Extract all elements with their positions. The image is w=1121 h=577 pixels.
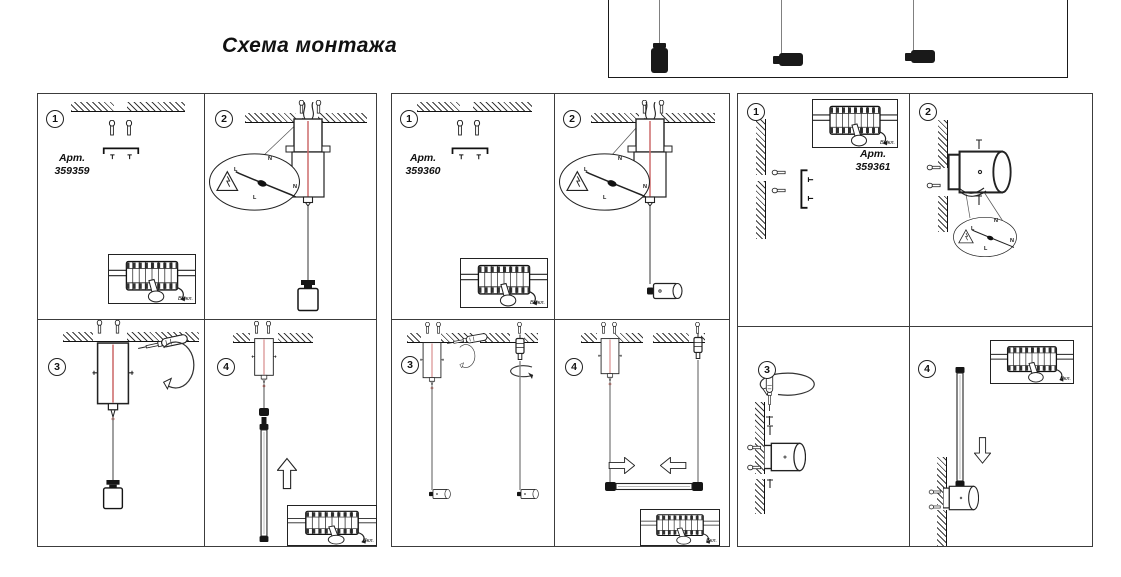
wall-canopy-icon (943, 486, 979, 509)
page-title: Схема монтажа (222, 34, 397, 58)
art-value: 359361 (842, 161, 904, 174)
dowel-icon (97, 320, 102, 333)
ceiling-canopy-icon (92, 343, 133, 417)
dowel-icon (927, 165, 940, 170)
dowel-icon (929, 490, 940, 494)
dowel-icon (748, 465, 761, 470)
tube-connector (262, 417, 267, 424)
step-1-cell: 1 Арт. 359360 Выкл. (392, 94, 554, 319)
art-label: Арт. (842, 148, 904, 161)
dowel-icon (115, 320, 120, 333)
cable-gripper-icon (516, 335, 524, 360)
rotation-arrow-icon (164, 342, 194, 389)
wire-n-label: N (1010, 238, 1014, 244)
terminal-block-inset: Выкл. (108, 254, 196, 304)
step-number-badge: 2 (563, 110, 581, 128)
terminal-block-inset: Вкл. (287, 505, 377, 546)
dowel-icon (696, 322, 700, 333)
pendant-lamp-horizontal (911, 50, 935, 63)
screw-icon (766, 416, 773, 425)
wiring-detail-balloon (210, 154, 300, 210)
wire-n-label: N (293, 184, 297, 190)
terminal-block-inset: Вкл. (640, 509, 720, 546)
ceiling-canopy-icon (598, 339, 622, 382)
down-arrow-icon (974, 438, 990, 464)
dowel-icon (602, 322, 606, 333)
art-label: Арт. (44, 152, 100, 165)
wire-n-label: N (268, 156, 272, 162)
tube-connector (605, 482, 616, 491)
wall-canopy-icon (764, 443, 805, 470)
article-number: Арт. 359360 (396, 152, 450, 178)
step-number-badge: 4 (217, 358, 235, 376)
spot-lamp-icon (647, 284, 682, 299)
step-number-badge: 1 (747, 103, 765, 121)
step-4-cell: 4 Вкл. (910, 327, 1092, 546)
rotation-arrow-icon (460, 345, 475, 368)
art-value: 359359 (44, 165, 100, 178)
mounting-bracket-icon (801, 170, 813, 208)
power-off-label: Выкл. (880, 140, 895, 146)
dowel-icon (927, 183, 940, 188)
step-3-cell: 3 (738, 327, 909, 546)
step-2-cell: 2 N L N L (205, 94, 376, 319)
lamp-socket-icon (104, 480, 123, 509)
power-on-label: Вкл. (363, 538, 374, 544)
pendant-lamp-horizontal (779, 53, 803, 66)
wire-n-label: N (643, 184, 647, 190)
art-label: Арт. (396, 152, 450, 165)
installation-instruction-sheet: Схема монтажа 1 Арт. 359359 (0, 0, 1121, 577)
step-3-cell: 3 (392, 320, 554, 546)
dowel-icon (316, 100, 321, 113)
step-number-badge: 1 (400, 110, 418, 128)
power-on-label: Вкл. (706, 538, 717, 544)
wire-n-label: N (618, 156, 622, 162)
art-value: 359360 (396, 165, 450, 178)
instruction-panel-359359: 1 Арт. 359359 Выкл. 2 (37, 93, 377, 547)
dowel-icon (772, 170, 785, 175)
right-arrow-icon (609, 457, 635, 473)
left-arrow-icon (660, 457, 686, 473)
article-number: Арт. 359359 (44, 152, 100, 178)
power-on-label: Вкл. (1060, 376, 1071, 382)
dowel-icon (518, 322, 522, 333)
pendant-cord (781, 0, 782, 57)
step-number-badge: 1 (46, 110, 64, 128)
step-2-cell: 2 N L N L (910, 94, 1092, 326)
dowel-icon (659, 100, 664, 113)
spot-lamp-icon (517, 489, 538, 498)
step-2-cell: 2 N L N L (555, 94, 729, 319)
dowel-icon (437, 322, 441, 333)
lamp-socket-icon (298, 280, 318, 311)
step-1-cell: 1 Арт. 359361 Выкл. (738, 94, 909, 326)
dowel-icon (748, 445, 761, 450)
cable-gripper-icon (694, 334, 702, 359)
tube-lamp-icon (260, 424, 269, 542)
step-3-cell: 3 (38, 320, 204, 546)
wire-n-label: N (994, 218, 998, 224)
ceiling-canopy-icon (252, 339, 277, 384)
balloon-leader-line (966, 194, 970, 218)
pendant-cord (913, 0, 914, 54)
dowel-icon (426, 322, 430, 333)
dowel-icon (474, 120, 479, 135)
tube-connector (692, 482, 703, 491)
article-number: Арт. 359361 (842, 148, 904, 174)
dowel-icon (929, 505, 940, 509)
step-number-badge: 4 (565, 358, 583, 376)
terminal-block-inset: Выкл. (460, 258, 548, 308)
terminal-block-inset: Вкл. (990, 340, 1074, 384)
power-off-label: Выкл. (530, 300, 545, 306)
dowel-icon (254, 321, 258, 333)
step-1-cell: 1 Арт. 359359 Выкл. (38, 94, 204, 319)
dowel-icon (613, 322, 617, 333)
ceiling-canopy-icon (420, 343, 444, 386)
mounting-bracket-icon (104, 148, 139, 159)
instruction-panel-359361: 1 Арт. 359361 Выкл. 2 (737, 93, 1093, 547)
up-arrow-icon (277, 459, 296, 489)
step-number-badge: 4 (918, 360, 936, 378)
wall-canopy-icon (949, 152, 1011, 193)
dowel-icon (266, 321, 270, 333)
step-number-badge: 3 (48, 358, 66, 376)
dowel-icon (109, 120, 114, 135)
terminal-block-inset: Выкл. (812, 99, 898, 148)
pendant-cord (659, 0, 660, 45)
step-4-cell: 4 Вкл. (205, 320, 376, 546)
wiring-detail-balloon (560, 154, 650, 210)
tube-connector (259, 408, 269, 416)
dowel-icon (126, 120, 131, 135)
mounting-bracket-icon (453, 148, 488, 159)
dowel-icon (457, 120, 462, 135)
tube-lamp-icon (956, 367, 965, 487)
step-number-badge: 2 (919, 103, 937, 121)
product-photo (608, 0, 1068, 78)
step-number-badge: 3 (401, 356, 419, 374)
step-number-badge: 2 (215, 110, 233, 128)
power-off-label: Выкл. (178, 296, 193, 302)
pendant-lamp-vertical (651, 48, 668, 73)
spot-lamp-icon (429, 489, 450, 498)
instruction-panel-359360: 1 Арт. 359360 Выкл. 2 (391, 93, 730, 547)
step-number-badge: 3 (758, 361, 776, 379)
dowel-icon (772, 188, 785, 193)
step-4-cell: 4 Вкл. (555, 320, 729, 546)
dowel-icon (299, 100, 304, 113)
